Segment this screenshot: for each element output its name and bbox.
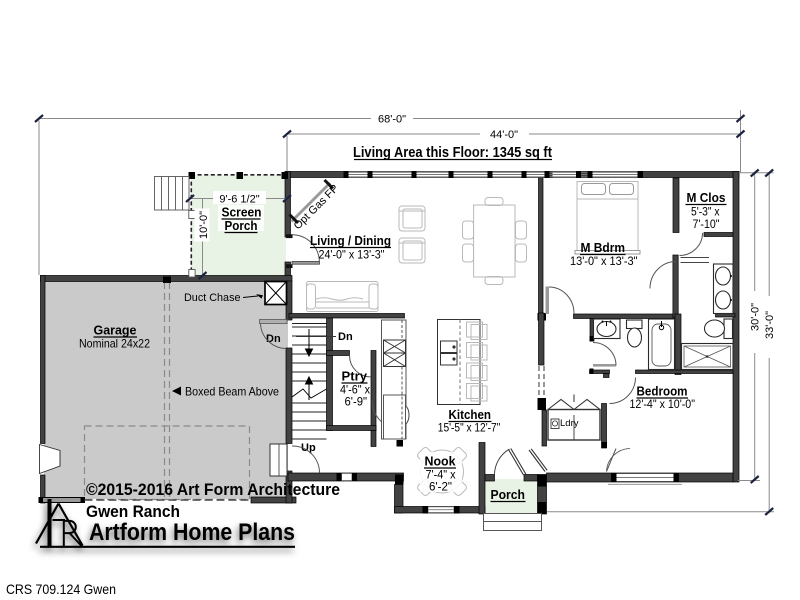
svg-text:CRS 709.124 Gwen: CRS 709.124 Gwen [6,581,116,597]
svg-text:6'-9": 6'-9" [345,395,368,409]
svg-text:Porch: Porch [491,487,526,502]
svg-text:13'-0" x 13'-3": 13'-0" x 13'-3" [570,254,638,268]
svg-text:44'-0": 44'-0" [490,129,518,141]
svg-text:Ldry: Ldry [560,418,579,429]
svg-text:M Clos: M Clos [687,190,726,205]
svg-text:6'-2": 6'-2" [429,480,452,494]
svg-text:Garage: Garage [94,323,137,338]
svg-text:68'-0": 68'-0" [378,114,406,126]
svg-text:7'-10": 7'-10" [693,217,720,231]
svg-text:Nook: Nook [425,454,457,469]
svg-text:Dn: Dn [338,331,353,343]
svg-text:©2015-2016 Art Form Architectu: ©2015-2016 Art Form Architecture [86,480,340,499]
svg-text:Living Area this Floor: 1345 s: Living Area this Floor: 1345 sq ft [353,145,552,161]
svg-text:Dn: Dn [266,333,281,345]
svg-text:Porch: Porch [225,218,258,233]
svg-text:Artform Home Plans: Artform Home Plans [89,519,295,546]
svg-text:Ptry: Ptry [342,369,368,384]
svg-text:24'-0" x 13'-3": 24'-0" x 13'-3" [319,248,385,262]
svg-text:Boxed Beam Above: Boxed Beam Above [185,385,279,399]
svg-text:Nominal 24x22: Nominal 24x22 [79,337,150,351]
svg-text:Duct Chase: Duct Chase [184,292,241,304]
svg-text:33'-0": 33'-0" [764,311,776,339]
svg-text:12'-4" x 10'-0": 12'-4" x 10'-0" [630,397,696,411]
svg-text:30'-0": 30'-0" [750,303,762,331]
svg-text:Living / Dining: Living / Dining [310,233,391,248]
svg-text:10'-0": 10'-0" [198,211,210,239]
svg-text:15'-5" x 12'-7": 15'-5" x 12'-7" [438,421,501,435]
svg-text:M Bdrm: M Bdrm [581,240,626,255]
